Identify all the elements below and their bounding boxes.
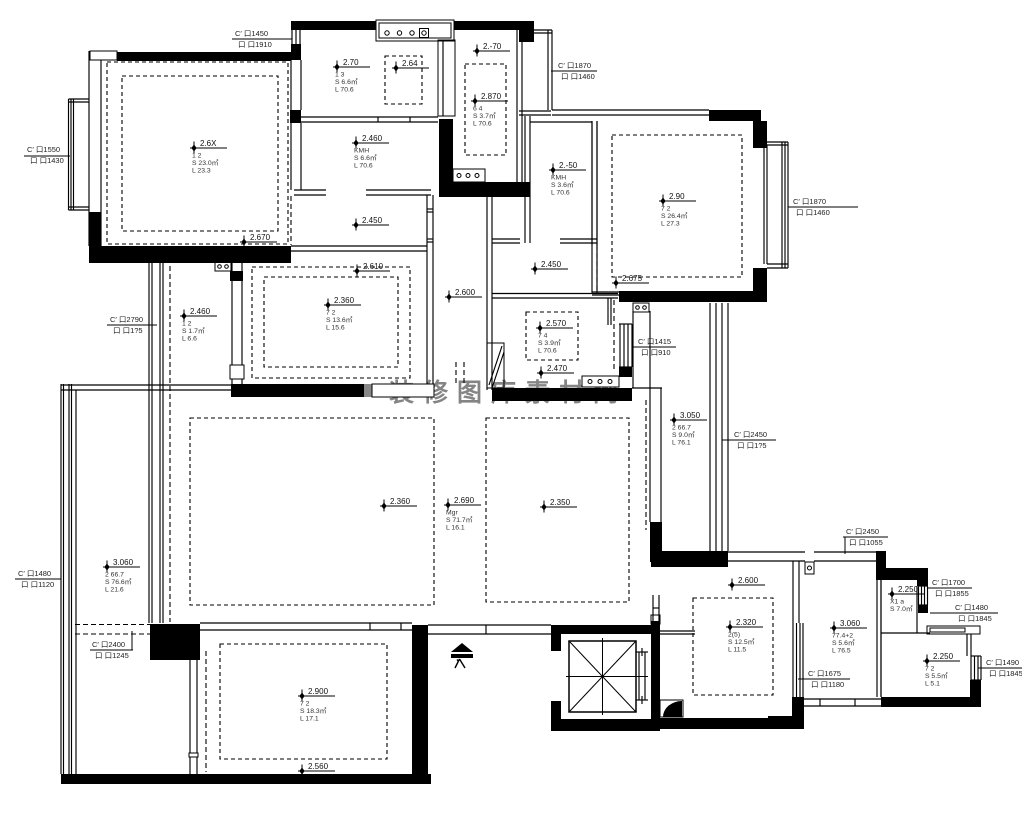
svg-text:2.460: 2.460 <box>362 134 383 143</box>
svg-text:2.900: 2.900 <box>308 687 329 696</box>
svg-text:2.870: 2.870 <box>481 92 502 101</box>
svg-text:S 18.3㎡: S 18.3㎡ <box>300 706 327 715</box>
svg-text:S 23.0㎡: S 23.0㎡ <box>192 158 219 167</box>
svg-text:7 2: 7 2 <box>925 666 935 673</box>
svg-text:口 口910: 口 口910 <box>641 348 671 357</box>
svg-text:2.360: 2.360 <box>334 296 355 305</box>
svg-text:C′ 口1450: C′ 口1450 <box>235 29 268 38</box>
svg-text:口 口1245: 口 口1245 <box>95 651 129 660</box>
svg-text:7 2: 7 2 <box>326 310 336 317</box>
svg-text:S 3.9㎡: S 3.9㎡ <box>538 338 561 347</box>
svg-text:KMH: KMH <box>354 148 369 155</box>
svg-text:C′ 口1870: C′ 口1870 <box>793 197 826 206</box>
svg-text:口 口1855: 口 口1855 <box>935 589 969 598</box>
svg-text:S 3.7㎡: S 3.7㎡ <box>473 111 496 120</box>
svg-text:2.670: 2.670 <box>250 233 271 242</box>
svg-text:S 7.0㎡: S 7.0㎡ <box>890 604 913 613</box>
svg-text:L 70.6: L 70.6 <box>538 348 557 355</box>
svg-text:L 16.1: L 16.1 <box>446 525 465 532</box>
svg-text:L 27.3: L 27.3 <box>661 221 680 228</box>
svg-text:S 76.6㎡: S 76.6㎡ <box>105 577 132 586</box>
svg-text:2.-70: 2.-70 <box>483 42 502 51</box>
svg-text:7 4: 7 4 <box>538 333 548 340</box>
svg-text:S 12.5㎡: S 12.5㎡ <box>728 637 755 646</box>
svg-text:口 口1?5: 口 口1?5 <box>737 441 767 450</box>
svg-text:2.675: 2.675 <box>622 274 643 283</box>
svg-text:2 66.7: 2 66.7 <box>105 572 124 579</box>
svg-text:S 71.7㎡: S 71.7㎡ <box>446 515 473 524</box>
svg-text:L 5.1: L 5.1 <box>925 681 940 688</box>
svg-text:2.-50: 2.-50 <box>559 161 578 170</box>
svg-text:2.690: 2.690 <box>454 496 475 505</box>
svg-text:2.320: 2.320 <box>736 618 757 627</box>
svg-text:C′ 口1415: C′ 口1415 <box>638 337 671 346</box>
svg-text:口 口1460: 口 口1460 <box>561 72 595 81</box>
svg-text:2.250: 2.250 <box>898 585 919 594</box>
svg-text:2.6X: 2.6X <box>200 139 217 148</box>
svg-text:2(5): 2(5) <box>728 632 740 639</box>
svg-text:C′ 口2400: C′ 口2400 <box>92 640 125 649</box>
svg-text:C′ 口1480: C′ 口1480 <box>955 603 988 612</box>
svg-text:2.450: 2.450 <box>541 260 562 269</box>
svg-text:7 2: 7 2 <box>661 206 671 213</box>
svg-text:2.350: 2.350 <box>550 498 571 507</box>
svg-text:S 5.6㎡: S 5.6㎡ <box>832 638 855 647</box>
svg-text:C′ 口1480: C′ 口1480 <box>18 569 51 578</box>
svg-text:口 口1430: 口 口1430 <box>30 156 64 165</box>
svg-text:1 3: 1 3 <box>335 72 345 79</box>
svg-text:C′ 口2450: C′ 口2450 <box>734 430 767 439</box>
svg-text:C′ 口1490: C′ 口1490 <box>986 658 1019 667</box>
svg-text:S 13.6㎡: S 13.6㎡ <box>326 315 353 324</box>
svg-text:L 21.6: L 21.6 <box>105 587 124 594</box>
svg-text:S 6.6㎡: S 6.6㎡ <box>335 77 358 86</box>
svg-text:L 23.3: L 23.3 <box>192 168 211 175</box>
svg-text:L 76.1: L 76.1 <box>672 440 691 447</box>
svg-text:2.450: 2.450 <box>362 216 383 225</box>
svg-text:2.460: 2.460 <box>190 307 211 316</box>
svg-text:S 6.6㎡: S 6.6㎡ <box>354 153 377 162</box>
svg-text:L 17.1: L 17.1 <box>300 716 319 723</box>
svg-text:C′ 口1870: C′ 口1870 <box>558 61 591 70</box>
svg-text:2.250: 2.250 <box>933 652 954 661</box>
svg-text:Mgr: Mgr <box>446 510 458 517</box>
svg-text:2.70: 2.70 <box>343 58 359 67</box>
svg-text:2.360: 2.360 <box>390 497 411 506</box>
svg-text:7 2: 7 2 <box>300 701 310 708</box>
svg-text:S 5.5㎡: S 5.5㎡ <box>925 671 948 680</box>
svg-text:3.060: 3.060 <box>113 558 134 567</box>
svg-text:C′ 口2790: C′ 口2790 <box>110 315 143 324</box>
svg-text:S 26.4㎡: S 26.4㎡ <box>661 211 688 220</box>
svg-text:2.64: 2.64 <box>402 59 418 68</box>
svg-text:X1 a: X1 a <box>890 599 904 606</box>
svg-text:3.050: 3.050 <box>680 411 701 420</box>
svg-text:L 70.6: L 70.6 <box>354 163 373 170</box>
svg-text:2.560: 2.560 <box>308 762 329 771</box>
svg-text:L 70.6: L 70.6 <box>551 190 570 197</box>
svg-text:L 11.5: L 11.5 <box>728 647 746 654</box>
svg-text:口 口1460: 口 口1460 <box>796 208 830 217</box>
svg-text:口 口1845: 口 口1845 <box>958 614 992 623</box>
svg-text:L 15.6: L 15.6 <box>326 325 345 332</box>
svg-text:L 76.5: L 76.5 <box>832 648 851 655</box>
svg-text:口 口1910: 口 口1910 <box>238 40 272 49</box>
svg-text:L 70.6: L 70.6 <box>335 87 354 94</box>
svg-text:L 6.6: L 6.6 <box>182 336 197 343</box>
svg-text:2.90: 2.90 <box>669 192 685 201</box>
svg-text:2.470: 2.470 <box>547 364 568 373</box>
svg-text:2.610: 2.610 <box>363 262 384 271</box>
svg-text:77.4+2: 77.4+2 <box>832 633 853 640</box>
svg-text:2.600: 2.600 <box>738 576 759 585</box>
svg-text:S 3.6㎡: S 3.6㎡ <box>551 180 574 189</box>
svg-text:1 2: 1 2 <box>192 153 202 160</box>
svg-text:口 口1180: 口 口1180 <box>811 680 844 689</box>
svg-text:1 2: 1 2 <box>182 321 192 328</box>
svg-text:KMH: KMH <box>551 175 566 182</box>
svg-text:C′ 口2450: C′ 口2450 <box>846 527 879 536</box>
svg-text:L 70.6: L 70.6 <box>473 121 492 128</box>
svg-text:C′ 口1550: C′ 口1550 <box>27 145 60 154</box>
svg-text:口 口1055: 口 口1055 <box>849 538 883 547</box>
svg-text:C′ 口1675: C′ 口1675 <box>808 669 841 678</box>
svg-text:2.600: 2.600 <box>455 288 476 297</box>
svg-text:口 口1120: 口 口1120 <box>21 580 54 589</box>
svg-text:S 1.7㎡: S 1.7㎡ <box>182 326 205 335</box>
svg-text:3.060: 3.060 <box>840 619 861 628</box>
svg-text:口 口1845: 口 口1845 <box>989 669 1022 678</box>
svg-text:2 66.7: 2 66.7 <box>672 425 691 432</box>
svg-text:2.570: 2.570 <box>546 319 567 328</box>
svg-text:S 9.0㎡: S 9.0㎡ <box>672 430 695 439</box>
svg-text:6 4: 6 4 <box>473 106 483 113</box>
svg-text:口 口1?5: 口 口1?5 <box>113 326 143 335</box>
svg-text:C′ 口1700: C′ 口1700 <box>932 578 965 587</box>
